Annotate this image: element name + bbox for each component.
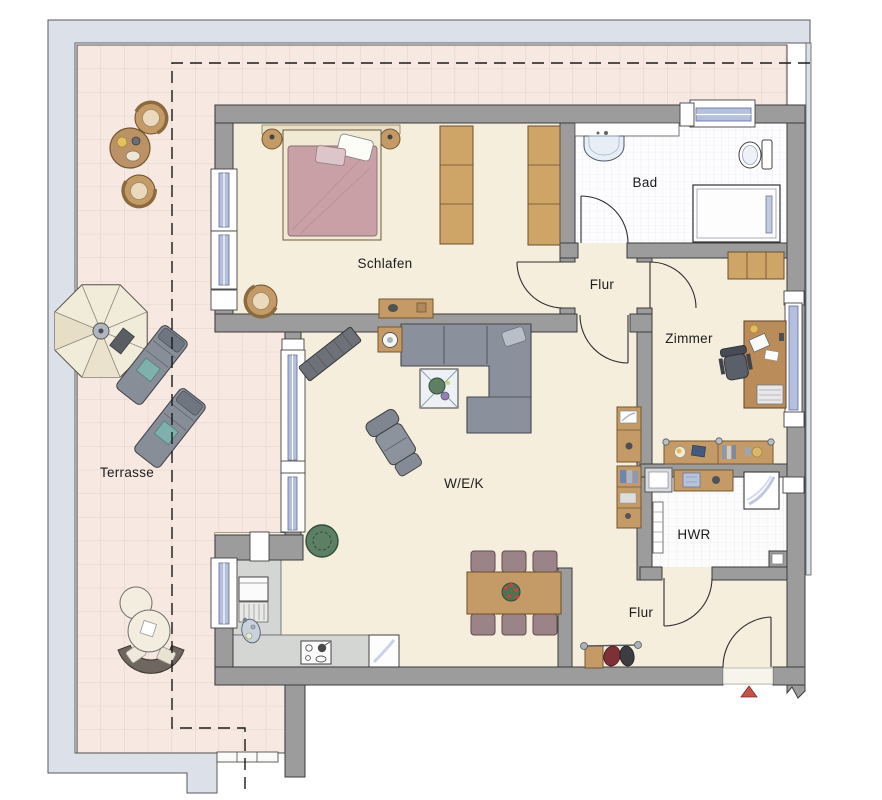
room-label-terrasse: Terrasse — [100, 465, 154, 480]
room-label-wek: W/E/K — [444, 476, 484, 491]
utility-shelf — [653, 502, 663, 553]
bedroom-terrace-door — [211, 290, 237, 310]
utility-vent — [783, 477, 804, 493]
fridge — [239, 577, 268, 601]
room-label-schlafen: Schlafen — [358, 256, 413, 271]
room-label-flur-upper: Flur — [590, 277, 615, 292]
side-table-lamp — [378, 327, 402, 352]
dining-set — [467, 551, 561, 635]
media-shelf — [617, 407, 641, 462]
bookshelf — [617, 466, 641, 528]
plant-bush — [306, 525, 338, 557]
laundry-table — [674, 470, 733, 491]
bedroom-window-2 — [211, 231, 237, 289]
wardrobe — [440, 126, 473, 244]
sideboard — [663, 438, 774, 464]
vanity-counter — [575, 123, 679, 136]
wardrobe — [528, 126, 560, 245]
room-label-flur-lower: Flur — [629, 605, 654, 620]
room-window — [784, 291, 804, 427]
bathroom-window — [680, 100, 755, 127]
room-wardrobe — [728, 252, 784, 279]
double-bed — [283, 130, 381, 240]
sink — [584, 131, 624, 161]
shower — [693, 185, 780, 242]
pavement-band-right — [806, 43, 811, 575]
coat-rack — [581, 642, 642, 669]
washing-machine — [744, 472, 779, 509]
bedroom-bench — [379, 299, 433, 318]
living-window-2 — [281, 473, 305, 532]
entrance-arrow — [741, 686, 757, 697]
floor-plan: Terrasse Schlafen Bad Flur Zimmer W/E/K … — [0, 0, 882, 800]
kitchen-window — [211, 558, 237, 628]
coffee-table — [420, 369, 458, 408]
bedroom-window-1 — [211, 169, 237, 231]
terrace-steps — [217, 752, 278, 762]
room-label-hwr: HWR — [677, 527, 710, 542]
kitchen-terrace-door — [250, 532, 269, 561]
toilet — [739, 140, 772, 169]
room-label-zimmer: Zimmer — [665, 331, 713, 346]
room-label-bad: Bad — [633, 175, 658, 190]
dishwasher — [369, 635, 399, 667]
stove — [301, 641, 331, 664]
floor-plan-svg: Terrasse Schlafen Bad Flur Zimmer W/E/K … — [0, 0, 882, 800]
